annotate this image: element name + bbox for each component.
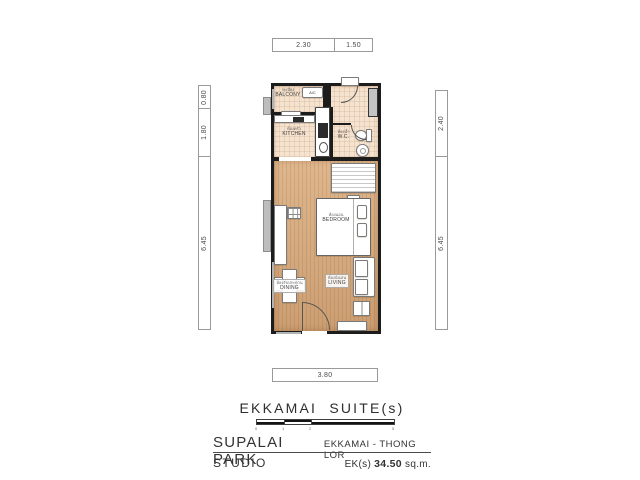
- dimension-left-2: 1.80: [199, 108, 210, 156]
- desk-drawers: [287, 207, 301, 219]
- scale-bar: [256, 419, 395, 425]
- wardrobe: [331, 163, 376, 193]
- wall-right: [378, 83, 381, 334]
- unit-area: EK(s) 34.50 sq.m.: [345, 458, 431, 470]
- unit-type: STUDIO: [213, 456, 267, 470]
- stove: [293, 117, 304, 122]
- dimension-right-2: 6.45: [436, 156, 447, 329]
- dimension-bar-left: 0.80 1.80 6.45: [198, 85, 211, 330]
- living-label: ห้องนั่งเล่น LIVING: [323, 272, 351, 288]
- kitchen-sink: [319, 142, 328, 153]
- plan-title: EKKAMAI SUITE(s): [208, 400, 436, 416]
- bed-blanket-line: [353, 199, 354, 255]
- wall-balcony-entry: [323, 86, 331, 109]
- window-bottom: [276, 332, 301, 334]
- dimension-left-3: 6.45: [199, 156, 210, 329]
- scale-tick-5: 5: [392, 426, 394, 431]
- door-gap-main: [302, 331, 327, 334]
- unit-row: STUDIO EK(s) 34.50 sq.m.: [213, 456, 431, 470]
- area-value: 34.50: [374, 458, 402, 470]
- balcony-label: ระเบียง BALCONY: [273, 88, 303, 98]
- scale-tick-0: 0: [255, 426, 257, 431]
- scale-segment-3: [311, 420, 394, 424]
- exterior-ledge-upper: [263, 97, 271, 115]
- dimension-left-1: 0.80: [199, 86, 210, 108]
- tv-cabinet: [274, 205, 287, 265]
- dining-label: ห้องรับประทาน DINING: [273, 277, 306, 293]
- dimension-right-1: 2.40: [436, 91, 447, 156]
- opening-kitchen: [279, 157, 311, 161]
- scale-segment-1: [257, 420, 284, 424]
- scale-tick-2: 2: [309, 426, 311, 431]
- ac-label: A/C: [309, 90, 316, 95]
- wall-entry-wc: [333, 123, 351, 125]
- dimension-bar-top: 2.30 1.50: [272, 38, 373, 52]
- floor-plan-sheet: 2.30 1.50 0.80 1.80 6.45 2.40 6.45 3.80: [0, 0, 640, 480]
- wash-basin-bowl: [360, 148, 366, 154]
- scale-segment-2: [284, 420, 311, 424]
- coffee-table: [353, 301, 370, 316]
- dimension-bar-right: 2.40 6.45: [435, 90, 448, 330]
- sofa-cushion-1: [355, 260, 368, 277]
- scale-tick-1: 1: [282, 426, 284, 431]
- dimension-bottom-1: 3.80: [273, 369, 377, 381]
- entrance-door-panel: [341, 77, 359, 86]
- pillow-2: [357, 223, 367, 237]
- dimension-bar-bottom: 3.80: [272, 368, 378, 382]
- console-bench: [337, 321, 367, 331]
- ac-condenser-unit: A/C: [302, 87, 323, 98]
- area-prefix: EK(s): [345, 459, 372, 470]
- dimension-top-2: 1.50: [334, 39, 372, 51]
- kitchen-label: ห้องครัว KITCHEN: [277, 127, 311, 137]
- titleblock-divider: [213, 452, 431, 453]
- wc-label: ห้องน้ำ W.C.: [333, 130, 354, 140]
- exterior-ledge-lower: [263, 200, 271, 252]
- sofa-cushion-2: [355, 279, 368, 295]
- dimension-top-1: 2.30: [273, 39, 334, 51]
- service-shaft: [368, 88, 378, 117]
- refrigerator: [318, 123, 328, 138]
- bedroom-label: ห้องนอน BEDROOM: [317, 213, 355, 223]
- area-unit: sq.m.: [405, 459, 431, 470]
- pillow-1: [357, 205, 367, 219]
- floor-plan: A/C ระเบียง BALCONY ห้องครัว KITCHEN ห้อ…: [271, 83, 381, 334]
